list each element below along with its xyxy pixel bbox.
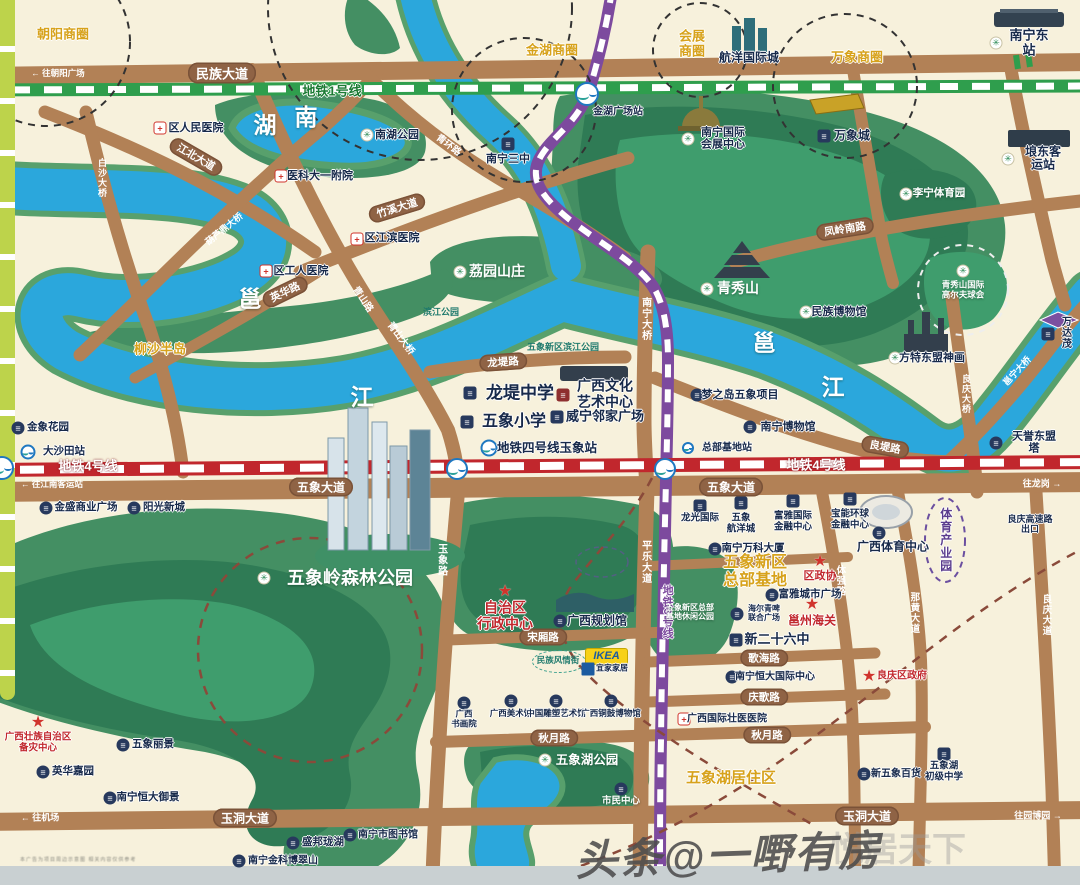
poi-label: 滨江公园 bbox=[423, 307, 459, 317]
building-icon: ≡ bbox=[40, 502, 53, 515]
metro-logo-icon bbox=[575, 82, 599, 106]
poi-label: 医科大一附院 bbox=[287, 170, 353, 182]
building-icon: ≡ bbox=[502, 138, 515, 151]
direction-arrow-label: ← 往江南客运站 bbox=[21, 478, 83, 490]
poi-label: 新二十六中 bbox=[744, 633, 809, 648]
poi-label: 广西体育中心 bbox=[857, 540, 929, 553]
poi-label: 威宁邻家广场 bbox=[566, 410, 644, 425]
building-icon: ≡ bbox=[990, 437, 1003, 450]
poi-label: 南宁恒大国际中心 bbox=[735, 671, 815, 682]
road-name-label: 白沙大桥 bbox=[97, 158, 107, 198]
road-name-label: 良庆大桥 bbox=[961, 374, 971, 414]
poi-label: 南宁东站 bbox=[1004, 28, 1055, 57]
hospital-icon: + bbox=[275, 170, 288, 183]
poi-label: 青秀山国际 高尔夫球会 bbox=[942, 280, 985, 299]
district-area-label: 体育产业园 bbox=[938, 508, 951, 573]
poi-label: 广西 书画院 bbox=[451, 709, 477, 728]
poi-label: 南宁恒大御景 bbox=[117, 792, 180, 804]
poi-label: 五象 航洋城 bbox=[727, 513, 756, 534]
building-icon: ≡ bbox=[873, 527, 886, 540]
road-pill-label: 民族大道 bbox=[188, 63, 256, 84]
poi-label: 梦之岛五象项目 bbox=[702, 389, 779, 401]
building-icon: ≡ bbox=[735, 497, 748, 510]
poi-label: 邕州海关 bbox=[788, 614, 836, 627]
poi-label: 总部基地站 bbox=[702, 442, 752, 453]
metro-logo-icon bbox=[682, 442, 694, 454]
poi-label: 万象城 bbox=[834, 129, 870, 142]
building-icon: ≡ bbox=[938, 748, 951, 761]
poi-label: 大沙田站 bbox=[43, 446, 85, 458]
poi-label: 民族博物馆 bbox=[812, 306, 867, 318]
road-pill-label: 龙堤路 bbox=[479, 352, 528, 372]
poi-label: 区江滨医院 bbox=[365, 232, 420, 244]
metro-logo-icon bbox=[654, 458, 676, 480]
poi-label: 地铁四号线玉象站 bbox=[497, 441, 597, 455]
poi-label: 区工人医院 bbox=[274, 265, 329, 277]
direction-arrow-label: ← 往朝阳广场 bbox=[31, 67, 84, 79]
building-icon: ≡ bbox=[550, 695, 563, 708]
district-area-label: 柳沙半岛 bbox=[134, 343, 186, 358]
expressway-band bbox=[0, 0, 15, 700]
building-icon: ≡ bbox=[557, 389, 570, 402]
road-name-label: 平乐大道 bbox=[639, 540, 650, 584]
river-name-char: 湖 bbox=[254, 113, 277, 139]
river-name-char: 江 bbox=[351, 385, 374, 411]
star-icon: ★ bbox=[862, 666, 876, 686]
road-pill-label: 秋月路 bbox=[530, 730, 578, 747]
building-icon: ≡ bbox=[554, 615, 567, 628]
building-icon: ≡ bbox=[731, 608, 744, 621]
metro-logo-icon bbox=[446, 458, 468, 480]
building-icon: ≡ bbox=[730, 634, 743, 647]
building-icon: ≡ bbox=[233, 855, 246, 868]
building-icon: ≡ bbox=[709, 543, 722, 556]
poi-label: 青秀山 bbox=[717, 281, 759, 297]
park-icon: ✳ bbox=[258, 572, 271, 585]
hospital-icon: + bbox=[351, 233, 364, 246]
poi-label: 金湖广场站 bbox=[593, 106, 643, 117]
building-icon: ≡ bbox=[787, 495, 800, 508]
poi-label: 天誉东盟塔 bbox=[1011, 431, 1057, 456]
poi-label: 广西壮族自治区 备灾中心 bbox=[5, 732, 72, 753]
building-icon: ≡ bbox=[12, 422, 25, 435]
poi-label: 良庆区政府 bbox=[877, 670, 927, 681]
poi-label: 埌东客运站 bbox=[1025, 146, 1062, 173]
building-icon: ≡ bbox=[605, 695, 618, 708]
metro-line-label: 地铁4号线 bbox=[786, 459, 845, 474]
park-icon: ✳ bbox=[361, 129, 374, 142]
building-icon: ≡ bbox=[117, 739, 130, 752]
park-icon: ✳ bbox=[1002, 153, 1015, 166]
poi-label: 新五象百货 bbox=[871, 768, 921, 779]
building-icon: ≡ bbox=[858, 768, 871, 781]
poi-label: 金盛商业广场 bbox=[55, 502, 118, 514]
hospital-icon: + bbox=[154, 122, 167, 135]
building-icon: ≡ bbox=[818, 130, 831, 143]
poi-label: 五象小学 bbox=[482, 413, 546, 431]
park-icon: ✳ bbox=[682, 133, 695, 146]
river-name-char: 江 bbox=[822, 375, 845, 401]
road-pill-label: 歌海路 bbox=[740, 650, 788, 667]
poi-label: 龙堤中学 bbox=[486, 383, 554, 402]
road-pill-label: 五象大道 bbox=[289, 478, 353, 497]
building-icon: ≡ bbox=[766, 589, 779, 602]
building-icon: ≡ bbox=[694, 500, 707, 513]
park-icon: ✳ bbox=[990, 37, 1003, 50]
poi-label: 广西规划馆 bbox=[567, 614, 627, 627]
watermark-text: 头条@一嘢有房 bbox=[574, 817, 883, 885]
poi-label: 南湖公园 bbox=[375, 129, 419, 141]
star-icon: ★ bbox=[813, 551, 827, 571]
poi-label: 五象丽景 bbox=[132, 739, 174, 751]
poi-label: 李宁体育园 bbox=[913, 188, 966, 200]
poi-label: 五象湖公园 bbox=[556, 753, 619, 767]
poi-label: 民族风情街 bbox=[537, 656, 580, 666]
metro-line-label: 地铁4号线 bbox=[58, 460, 117, 475]
building-icon: ≡ bbox=[615, 783, 628, 796]
park-icon: ✳ bbox=[454, 266, 467, 279]
poi-label: 五象新区总部 基地休闲公园 bbox=[666, 604, 714, 622]
poi-label: 南宁市图书馆 bbox=[358, 829, 418, 840]
building-icon: ≡ bbox=[464, 387, 477, 400]
nanning-wuxiang-district-map: IKEA 悦居天下 头条@一嘢有房 本广告为项目周边示意图 相关内容仅供参考 湖… bbox=[0, 0, 1080, 885]
poi-label: 阳光新城 bbox=[143, 502, 185, 514]
park-icon: ✳ bbox=[900, 188, 913, 201]
park-icon: ✳ bbox=[701, 283, 714, 296]
building-icon: ≡ bbox=[744, 421, 757, 434]
poi-label: 中国雕塑艺术馆 bbox=[526, 709, 586, 719]
building-icon: ≡ bbox=[1042, 328, 1055, 341]
building-icon bbox=[582, 663, 595, 676]
poi-label: 海尔青啤 联合广场 bbox=[748, 605, 780, 623]
poi-label: 区政协 bbox=[804, 570, 837, 582]
poi-label: 良庆高速路出口 bbox=[1005, 514, 1055, 534]
poi-label: 航洋国际城 bbox=[719, 51, 779, 64]
building-icon: ≡ bbox=[844, 493, 857, 506]
poi-label: 宜家家居 bbox=[596, 665, 628, 674]
poi-label: 英华嘉园 bbox=[52, 766, 94, 778]
poi-label: 南宁万科大厦 bbox=[722, 543, 785, 555]
district-area-label: 万象商圈 bbox=[831, 51, 883, 66]
road-pill-label: 庆歌路 bbox=[740, 689, 788, 706]
district-area-label: 朝阳商圈 bbox=[37, 28, 89, 43]
poi-label: 南宁金科博翠山 bbox=[248, 855, 318, 866]
building-icon: ≡ bbox=[505, 695, 518, 708]
star-icon: ★ bbox=[498, 581, 512, 601]
park-icon: ✳ bbox=[539, 754, 552, 767]
poi-label: 五象新区滨江公园 bbox=[527, 342, 599, 352]
disclaimer-fine-print: 本广告为项目周边示意图 相关内容仅供参考 bbox=[20, 856, 136, 863]
building-icon: ≡ bbox=[104, 792, 117, 805]
road-name-label: 玉象路 bbox=[435, 544, 446, 577]
river-name-char: 南 bbox=[295, 105, 318, 131]
poi-label: 广西铜鼓博物馆 bbox=[581, 709, 641, 719]
road-name-label: 那黄大道 bbox=[908, 592, 919, 634]
poi-label: 南宁博物馆 bbox=[761, 421, 816, 433]
road-pill-label: 秋月路 bbox=[743, 727, 791, 744]
poi-label: 广西文化 艺术中心 bbox=[577, 378, 633, 409]
poi-label: 万达茂 bbox=[1061, 317, 1074, 351]
building-icon: ≡ bbox=[37, 766, 50, 779]
poi-label: 南宁国际 会展中心 bbox=[701, 127, 745, 152]
poi-label: 宝能环球 金融中心 bbox=[831, 509, 869, 530]
star-icon: ★ bbox=[31, 712, 45, 732]
park-icon: ✳ bbox=[957, 265, 970, 278]
building-icon: ≡ bbox=[461, 416, 474, 429]
direction-arrow-label: 往园博园 → bbox=[1014, 809, 1062, 822]
direction-arrow-label: 往龙岗 → bbox=[1023, 477, 1062, 490]
river-name-char: 邕 bbox=[239, 287, 262, 313]
river-name-char: 邕 bbox=[753, 331, 776, 357]
poi-label: 五象岭森林公园 bbox=[287, 568, 413, 588]
district-area-label: 会展 商圈 bbox=[679, 29, 705, 58]
metro-logo-icon bbox=[21, 445, 36, 460]
poi-label: 龙光国际 bbox=[681, 514, 719, 525]
building-icon: ≡ bbox=[551, 411, 564, 424]
poi-label: 荔园山庄 bbox=[469, 264, 525, 280]
poi-label: 金象花园 bbox=[27, 422, 69, 434]
poi-label: 五象湖 初级中学 bbox=[925, 761, 963, 782]
district-area-label: 金湖商圈 bbox=[526, 44, 578, 59]
district-area-label: 五象湖居住区 bbox=[686, 771, 776, 788]
hospital-icon: + bbox=[260, 265, 273, 278]
poi-label: 南宁三中 bbox=[486, 153, 530, 165]
poi-label: 盛邦珑湖 bbox=[302, 837, 344, 849]
building-icon: ≡ bbox=[344, 829, 357, 842]
poi-label: 富雅国际 金融中心 bbox=[774, 511, 812, 532]
building-icon: ≡ bbox=[287, 837, 300, 850]
metro-line-label: 地铁1号线 bbox=[302, 85, 361, 100]
direction-arrow-label: ← 往机场 bbox=[21, 811, 60, 824]
metro-logo-icon bbox=[481, 440, 498, 457]
district-area-label: 五象新区 总部基地 bbox=[723, 554, 787, 590]
road-pill-label: 五象大道 bbox=[699, 478, 763, 497]
poi-label: 区人民医院 bbox=[169, 122, 224, 134]
poi-label: 自治区 行政中心 bbox=[477, 600, 533, 631]
road-pill-label: 玉洞大道 bbox=[213, 809, 277, 828]
poi-label: 方特东盟神画 bbox=[899, 352, 965, 364]
road-name-label: 良庆大道 bbox=[1040, 594, 1051, 636]
poi-label: 市民中心 bbox=[602, 797, 640, 808]
building-icon: ≡ bbox=[128, 502, 141, 515]
star-icon: ★ bbox=[805, 594, 819, 614]
poi-label: 广西国际壮医医院 bbox=[687, 713, 767, 724]
road-name-label: 南宁大桥 bbox=[639, 297, 650, 341]
